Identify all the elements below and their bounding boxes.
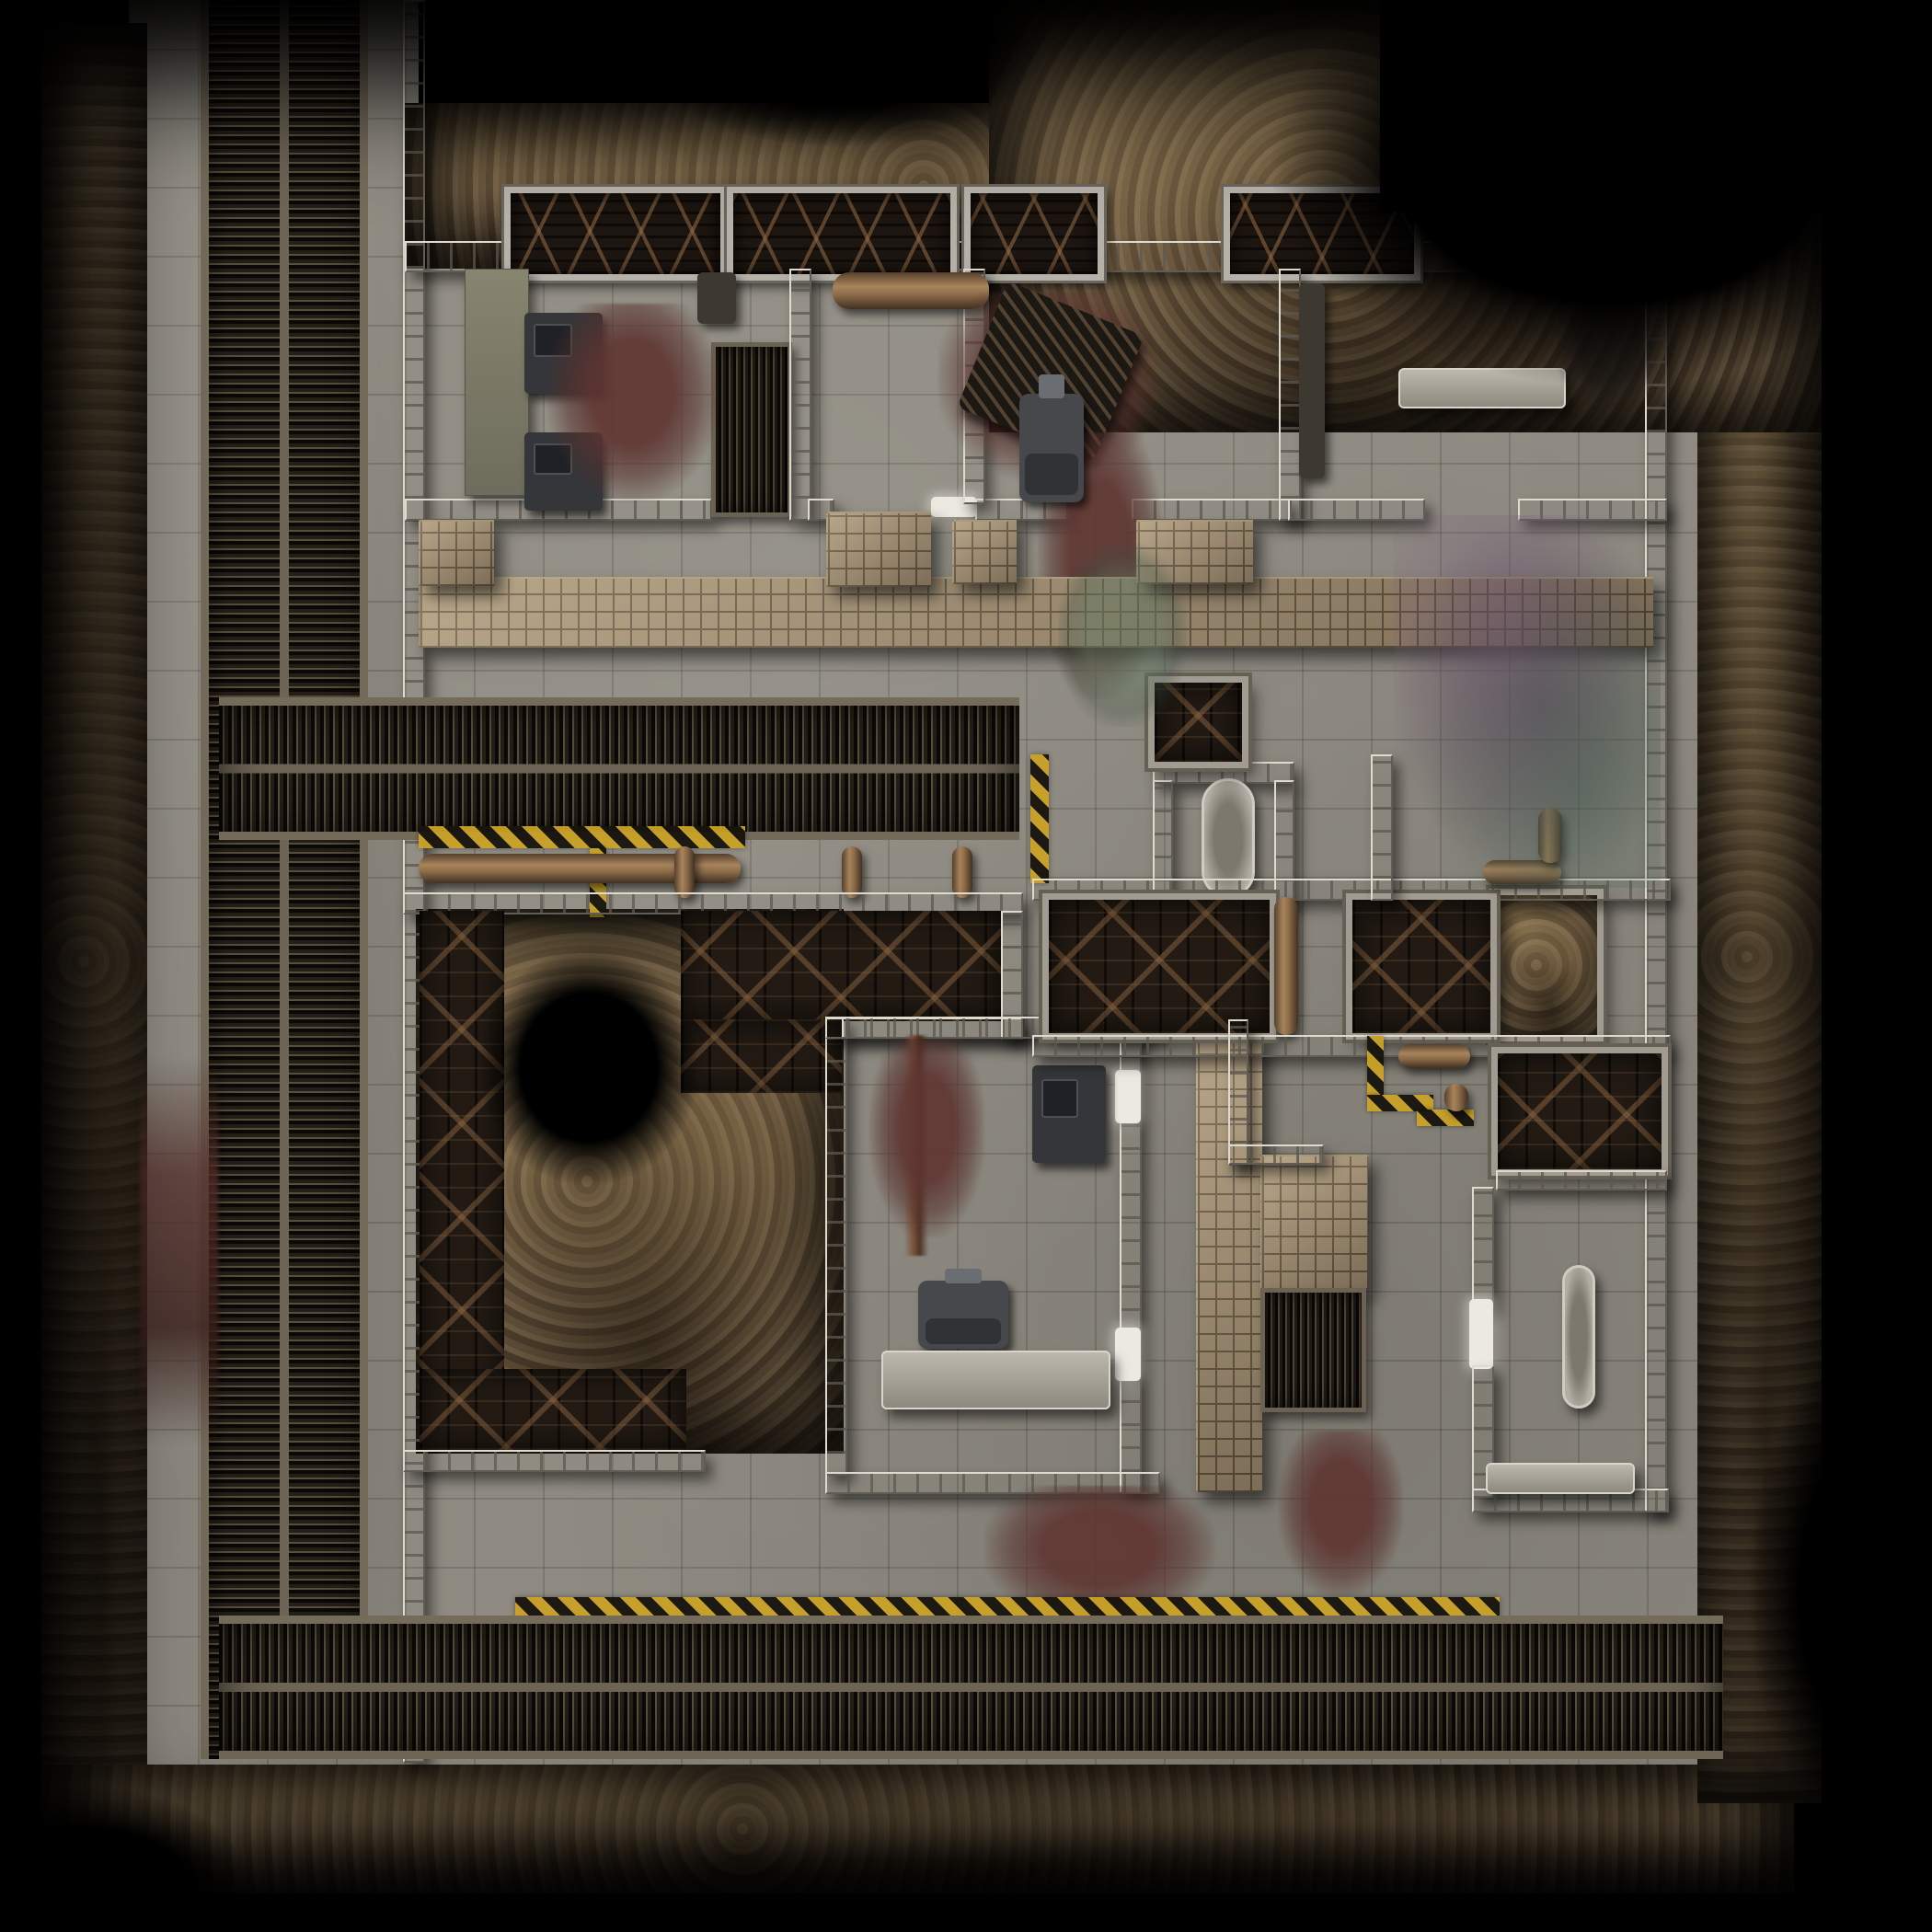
void-top-middle — [626, 0, 1049, 147]
chair-room-bench — [881, 1351, 1110, 1409]
bottom-blood-spatter-2 — [1279, 1431, 1403, 1596]
pipe-right-2 — [1444, 1084, 1468, 1111]
catwalk-pit-bottom-wall — [403, 1450, 706, 1472]
chair-room-door-2 — [1115, 1328, 1141, 1381]
chair-room-blood — [869, 1040, 984, 1237]
green-stain-corridor — [1058, 543, 1187, 727]
window-room-a — [504, 187, 727, 281]
catwalk-cell-2 — [1352, 900, 1490, 1033]
chair-room-desk — [1032, 1065, 1106, 1163]
pipe-stub-2 — [842, 846, 862, 898]
cobble-path-column — [419, 520, 494, 586]
br-room-pill-bench — [1562, 1265, 1595, 1409]
pit-void-hole — [478, 948, 699, 1187]
pipe-right-1 — [1398, 1044, 1470, 1068]
br-room-door — [1469, 1299, 1493, 1369]
room-a-crate — [697, 272, 736, 324]
room-a-counter — [465, 269, 529, 496]
window-room-b — [727, 187, 957, 281]
mid-grate-corridor — [219, 697, 1019, 840]
wall-room-a-b — [789, 269, 811, 521]
cobble-cross-arm — [1260, 1155, 1368, 1290]
void-bottom-left — [0, 1785, 258, 1932]
stairs-grate-room-a — [711, 342, 792, 517]
stair-grate-cross — [1260, 1288, 1366, 1412]
void-top-right-fade — [1270, 0, 1932, 386]
hazard-zigzag-v — [1367, 1036, 1384, 1097]
hazard-zigzag-h2 — [1417, 1110, 1474, 1126]
pipe-stub-3 — [952, 846, 972, 898]
catwalk-block-upper — [681, 911, 1001, 1021]
room-a-blood-pool — [547, 304, 718, 501]
hazard-line-mid — [419, 826, 745, 848]
corner-wall-h — [1228, 1144, 1324, 1165]
catwalk-cell-3 — [1498, 1053, 1662, 1169]
br-room-left-wall-upper — [1472, 1187, 1494, 1308]
purple-room-stain — [1394, 515, 1661, 888]
rock-border-bottom — [41, 1765, 1794, 1893]
window-room-c — [964, 187, 1104, 281]
hazard-line-vertical — [1030, 754, 1049, 883]
chair-room-door-1 — [1115, 1070, 1141, 1123]
br-room-top-wall — [1496, 1170, 1667, 1190]
void-right-lower — [1748, 1334, 1932, 1849]
chair-room-office-chair — [918, 1281, 1008, 1349]
rock-border-left — [41, 23, 147, 1900]
purple-room-left-wall — [1371, 754, 1393, 901]
battle-map — [0, 0, 1932, 1932]
rock-cell-framed — [1496, 895, 1597, 1035]
vertical-grate-corridor — [201, 0, 368, 1759]
catwalk-block-ext — [681, 1019, 842, 1093]
catwalk-bottom-arm — [420, 1369, 686, 1450]
catwalk-pit-right-wall — [825, 1018, 847, 1476]
pipe-stub-1 — [674, 846, 695, 898]
cells-pipe-vertical — [1274, 897, 1298, 1035]
br-room-bench — [1486, 1463, 1635, 1494]
left-floor-blood-streak — [140, 1058, 218, 1444]
catwalk-cell-1 — [1049, 900, 1270, 1033]
cobble-patch-1 — [952, 520, 1017, 584]
room-c-office-chair — [1019, 394, 1084, 502]
hazard-line-bottom — [515, 1597, 1500, 1617]
cobble-doorway-column — [826, 512, 931, 587]
bottom-grate-corridor — [219, 1616, 1723, 1759]
